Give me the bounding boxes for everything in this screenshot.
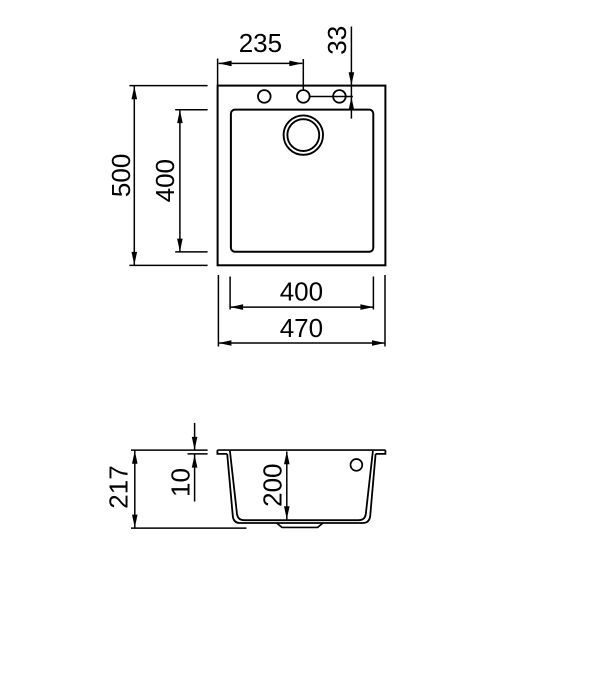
svg-text:235: 235 (239, 28, 282, 58)
svg-text:400: 400 (280, 276, 323, 306)
svg-text:400: 400 (150, 159, 180, 202)
svg-text:470: 470 (280, 313, 323, 343)
svg-text:500: 500 (106, 154, 136, 197)
svg-text:200: 200 (258, 464, 288, 507)
svg-text:33: 33 (322, 26, 352, 55)
svg-text:10: 10 (166, 468, 196, 497)
svg-text:217: 217 (103, 465, 133, 508)
